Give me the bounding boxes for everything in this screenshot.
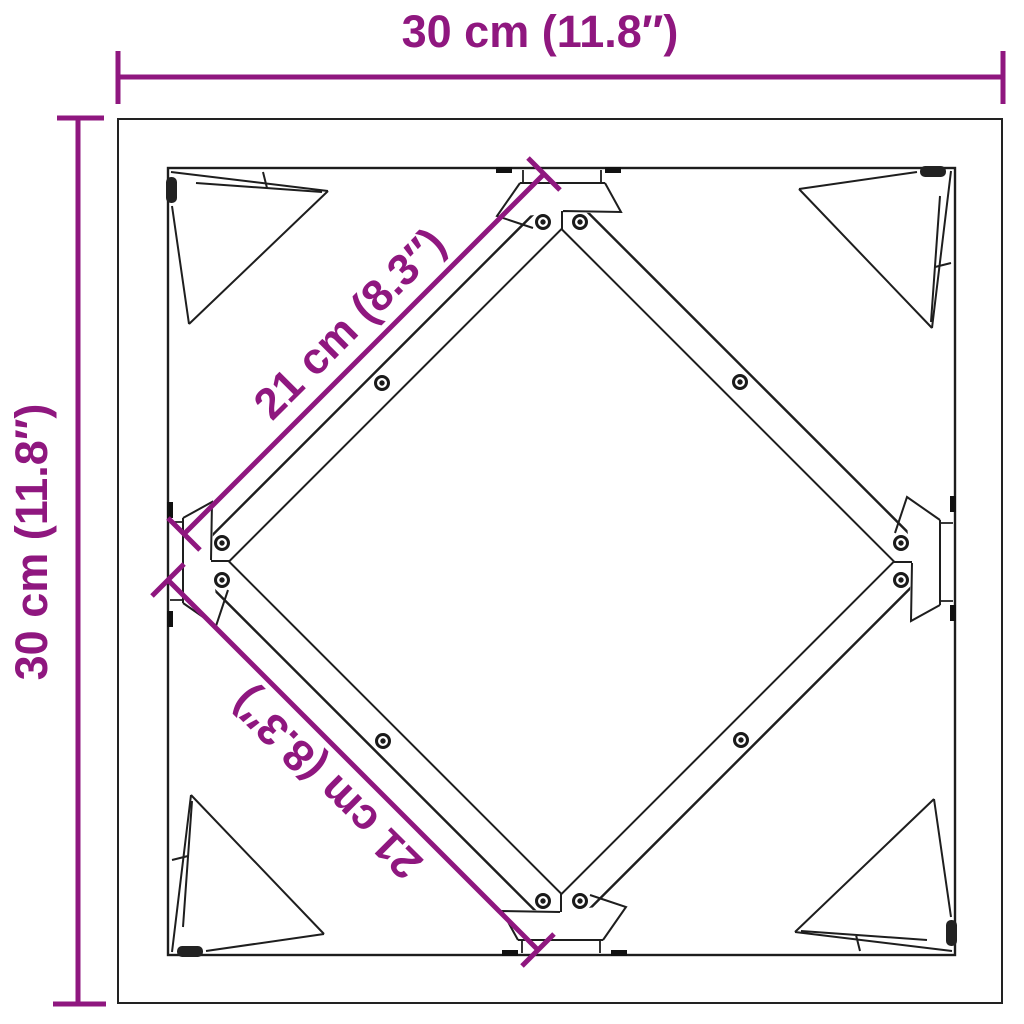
height-dimension-label: 30 cm (11.8″): [6, 404, 57, 681]
diagonal-dimension-line-bottom: [152, 564, 554, 966]
height-dimension-line: [53, 118, 106, 1004]
hardware-top-right: [734, 166, 954, 624]
hardware-bottom-right: [499, 734, 957, 954]
frame-outer-edge: [118, 119, 1002, 1003]
frame: [118, 119, 1002, 1003]
cross-brace: [186, 186, 937, 937]
diagonal-dimension-line-top: [168, 158, 560, 550]
frame-inner-edge: [168, 168, 955, 955]
width-dimension-line: [118, 51, 1003, 104]
width-dimension-label: 30 cm (11.8″): [402, 6, 679, 57]
diagram-canvas: 30 cm (11.8″) 30 cm (11.8″) 21 cm (8.3″)…: [0, 0, 1024, 1024]
brace-outer-edge: [186, 186, 937, 937]
dimension-diagram: 30 cm (11.8″) 30 cm (11.8″) 21 cm (8.3″)…: [0, 0, 1024, 1024]
diagonal-dimension-label-bottom: 21 cm (8.3″): [222, 678, 432, 888]
